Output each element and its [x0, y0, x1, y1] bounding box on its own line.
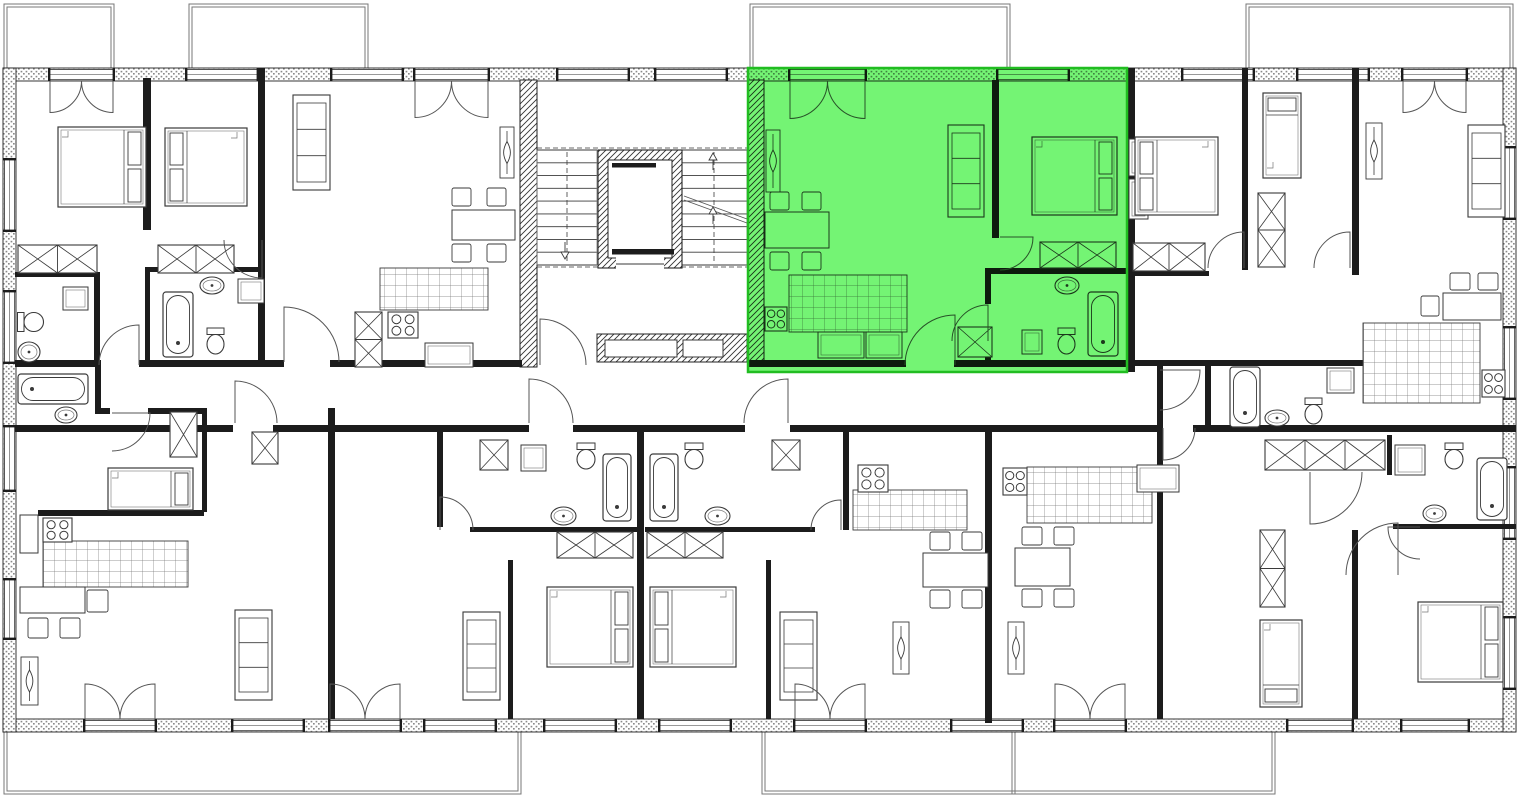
selected-apartment-highlight[interactable]: [748, 68, 1127, 372]
shelf: [63, 279, 1425, 507]
floor-plan: [0, 0, 1519, 800]
elevator: [598, 150, 682, 269]
wardrobe: [18, 193, 1385, 607]
floor-plan-svg: [0, 0, 1519, 800]
